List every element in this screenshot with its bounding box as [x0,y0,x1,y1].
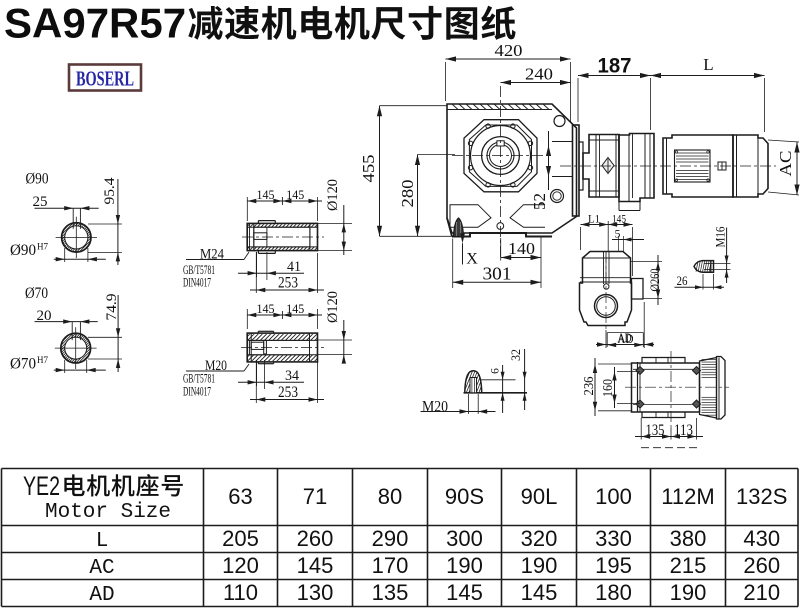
svg-text:190: 190 [670,580,707,605]
svg-text:145: 145 [286,302,304,316]
svg-text:160: 160 [600,379,615,397]
svg-text:6: 6 [490,368,502,374]
svg-text:71: 71 [303,484,327,509]
svg-text:25: 25 [33,194,48,210]
svg-text:M24: M24 [200,246,225,262]
svg-text:180: 180 [595,580,632,605]
svg-text:L: L [96,530,109,553]
svg-text:74.9: 74.9 [104,294,120,321]
svg-text:135: 135 [372,580,409,605]
svg-text:Ø90: Ø90 [26,171,49,188]
svg-text:290: 290 [372,526,409,551]
svg-text:260: 260 [297,526,334,551]
svg-text:Ø260: Ø260 [648,269,662,292]
svg-text:130: 130 [297,580,334,605]
svg-text:113: 113 [674,422,693,439]
svg-text:95.4: 95.4 [102,177,118,205]
svg-text:AC: AC [89,557,114,580]
svg-text:Motor Size: Motor Size [45,501,171,524]
svg-text:140: 140 [508,239,535,258]
svg-text:380: 380 [670,526,707,551]
svg-text:90L: 90L [521,484,558,509]
svg-text:112M: 112M [661,484,714,509]
svg-text:L: L [703,55,713,74]
svg-text:63: 63 [228,484,252,509]
svg-text:236: 236 [581,376,596,395]
svg-text:132S: 132S [736,484,787,509]
svg-text:187: 187 [598,55,632,78]
svg-text:DIN4017: DIN4017 [183,384,211,398]
svg-text:170: 170 [372,553,409,578]
svg-text:240: 240 [525,65,553,84]
svg-text:145: 145 [286,188,304,202]
svg-text:5: 5 [615,229,621,241]
svg-text:330: 330 [595,526,632,551]
svg-text:M20: M20 [422,399,448,416]
svg-text:41: 41 [287,259,301,275]
svg-text:32: 32 [508,349,523,361]
svg-text:320: 320 [521,526,558,551]
svg-text:300: 300 [446,526,483,551]
svg-text:280: 280 [398,180,417,208]
svg-text:Ø90: Ø90 [10,242,36,259]
svg-text:L1: L1 [588,214,600,226]
svg-text:145: 145 [446,580,483,605]
svg-text:34: 34 [285,368,299,384]
svg-text:190: 190 [521,553,558,578]
svg-text:X: X [466,251,478,268]
svg-text:210: 210 [743,580,780,605]
svg-text:205: 205 [222,526,259,551]
svg-text:145: 145 [297,553,334,578]
svg-text:DIN4017: DIN4017 [183,275,211,289]
svg-text:M16: M16 [714,227,728,248]
svg-text:253: 253 [278,384,298,401]
svg-text:80: 80 [378,484,402,509]
svg-text:420: 420 [495,41,523,60]
svg-text:145: 145 [257,302,275,316]
svg-text:145: 145 [257,188,275,202]
svg-text:301: 301 [483,263,512,283]
svg-text:Ø120: Ø120 [325,291,341,323]
svg-text:145: 145 [612,214,626,226]
svg-text:26: 26 [677,274,688,288]
svg-text:90S: 90S [445,484,484,509]
svg-text:455: 455 [359,155,378,183]
svg-text:AD: AD [89,584,114,607]
svg-text:260: 260 [743,553,780,578]
svg-text:Ø70: Ø70 [25,285,48,302]
svg-text:190: 190 [446,553,483,578]
svg-text:52: 52 [530,193,549,210]
svg-text:135: 135 [646,422,665,439]
svg-text:SA97R57: SA97R57 [4,0,186,46]
svg-text:H7: H7 [37,242,48,252]
svg-text:120: 120 [222,553,259,578]
svg-text:195: 195 [595,553,632,578]
svg-text:BOSERL: BOSERL [76,67,134,91]
svg-text:AD: AD [618,332,634,346]
svg-text:110: 110 [223,580,258,605]
svg-text:145: 145 [521,580,558,605]
svg-text:Ø70: Ø70 [10,356,36,373]
svg-text:AC: AC [776,151,795,177]
svg-text:Ø120: Ø120 [325,179,341,211]
svg-text:215: 215 [670,553,707,578]
svg-text:YE2: YE2 [23,471,60,501]
svg-text:430: 430 [743,526,780,551]
svg-text:H7: H7 [37,355,48,365]
svg-text:253: 253 [278,275,298,292]
svg-text:100: 100 [595,484,632,509]
